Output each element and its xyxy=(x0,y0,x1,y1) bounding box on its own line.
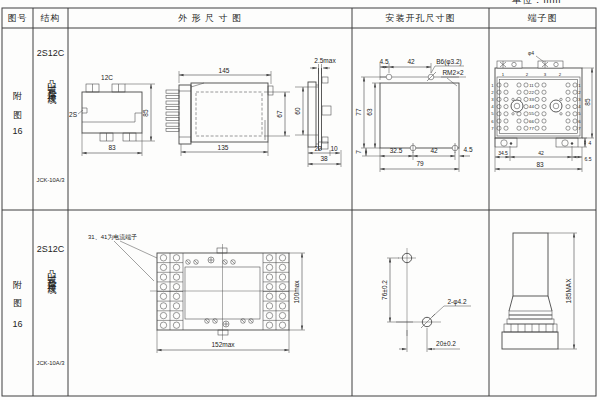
svg-text:11: 11 xyxy=(529,83,534,88)
dim-32-5: 32.5 xyxy=(390,147,403,154)
svg-text:55: 55 xyxy=(529,111,534,116)
dim-42-top: 42 xyxy=(407,58,415,65)
label-rm2: RM2×2 xyxy=(442,69,464,76)
row2-outline-drawing: 31、41为电流端子 xyxy=(88,233,305,353)
dim-135: 135 xyxy=(218,144,229,151)
dim-85: 85 xyxy=(142,109,149,117)
dim-20: 20±0.2 xyxy=(436,340,456,347)
svg-text:2: 2 xyxy=(491,90,494,95)
svg-text:5: 5 xyxy=(491,111,494,116)
dim-145: 145 xyxy=(219,67,230,74)
svg-text:22: 22 xyxy=(529,90,534,95)
note-current-terminals: 31、41为电流端子 xyxy=(88,233,137,241)
dim-85-terminal: 85 xyxy=(584,98,591,106)
dim-4-5-right: 4.5 xyxy=(463,146,472,153)
dim-34-5: 34.5 xyxy=(498,150,508,156)
label-b6: B6(φ3.2) xyxy=(436,58,462,66)
dim-2s: 2S xyxy=(69,111,78,118)
svg-text:44: 44 xyxy=(529,104,534,109)
svg-text:1: 1 xyxy=(491,83,494,88)
row2-mounting-drawing: 76±0.2 2-φ4.2 20±0.2 xyxy=(381,248,472,352)
row1-outline-end-view: 2.5max 22 10 38 xyxy=(308,57,341,168)
row1-outline-top-view: 12C 2S 85 83 xyxy=(69,74,155,156)
svg-text:33: 33 xyxy=(529,97,534,102)
dim-2-5max: 2.5max xyxy=(314,57,336,64)
svg-text:66: 66 xyxy=(529,119,534,124)
dim-76: 76±0.2 xyxy=(381,280,388,300)
svg-text:7: 7 xyxy=(578,126,581,131)
dim-79: 79 xyxy=(416,160,424,167)
dim-7: 7 xyxy=(355,150,362,154)
terminal-grid xyxy=(497,83,577,130)
dim-42-bottom: 42 xyxy=(430,147,438,154)
svg-text:7: 7 xyxy=(491,126,494,131)
dim-83-terminal: 83 xyxy=(536,161,544,168)
top-num: 2 xyxy=(526,72,529,77)
row1-terminal-drawing: φ4 1 2 3 2 1111 2222 3 xyxy=(491,50,594,172)
dim-60: 60 xyxy=(294,107,301,115)
svg-text:3: 3 xyxy=(491,97,494,102)
drawing-layer: 12C 2S 85 83 145 135 xyxy=(0,0,600,400)
svg-text:4: 4 xyxy=(578,104,581,109)
dim-83: 83 xyxy=(108,144,116,151)
top-num: 3 xyxy=(544,72,547,77)
svg-text:6: 6 xyxy=(491,119,494,124)
screw-symbols xyxy=(186,257,254,327)
label-phi4: φ4 xyxy=(528,50,534,56)
dim-185max: 185MAX xyxy=(565,278,572,304)
dim-77: 77 xyxy=(355,108,362,116)
dim-42-terminal: 42 xyxy=(538,150,544,156)
svg-text:5: 5 xyxy=(578,111,581,116)
dim-63: 63 xyxy=(366,108,373,116)
top-num: 2 xyxy=(559,72,562,77)
dim-22: 22 xyxy=(314,145,322,152)
svg-text:3: 3 xyxy=(578,97,581,102)
terminal-row-numbers: 1111 2222 3333 4444 5555 6666 7777 xyxy=(491,83,581,131)
dim-4-5-top: 4.5 xyxy=(379,58,388,65)
svg-text:2: 2 xyxy=(578,90,581,95)
dim-100max: 100max xyxy=(293,280,300,304)
dim-6-5: 6.5 xyxy=(585,156,592,162)
svg-text:77: 77 xyxy=(529,126,534,131)
dim-12c: 12C xyxy=(101,74,113,81)
dim-38: 38 xyxy=(320,155,328,162)
dim-4-tab: 4 xyxy=(589,140,592,146)
row2-terminal-drawing: 185MAX xyxy=(502,233,577,349)
dim-67: 67 xyxy=(276,110,283,118)
label-2-phi4-2: 2-φ4.2 xyxy=(447,298,466,306)
row1-outline-side-view: 145 135 67 60 xyxy=(166,67,318,157)
row1-mounting-drawing: 4.5 42 B6(φ3.2) RM2×2 77 63 7 32.5 42 4.… xyxy=(355,58,473,173)
svg-text:1: 1 xyxy=(578,83,581,88)
dim-10: 10 xyxy=(330,145,338,152)
svg-text:6: 6 xyxy=(578,119,581,124)
dim-152max: 152max xyxy=(211,341,235,348)
catalog-page: 单位：mm 图号 结构 外 形 尺 寸 图 安装开孔尺寸图 端子图 附 图 16… xyxy=(0,0,600,400)
svg-text:4: 4 xyxy=(491,104,494,109)
top-num: 1 xyxy=(502,72,505,77)
